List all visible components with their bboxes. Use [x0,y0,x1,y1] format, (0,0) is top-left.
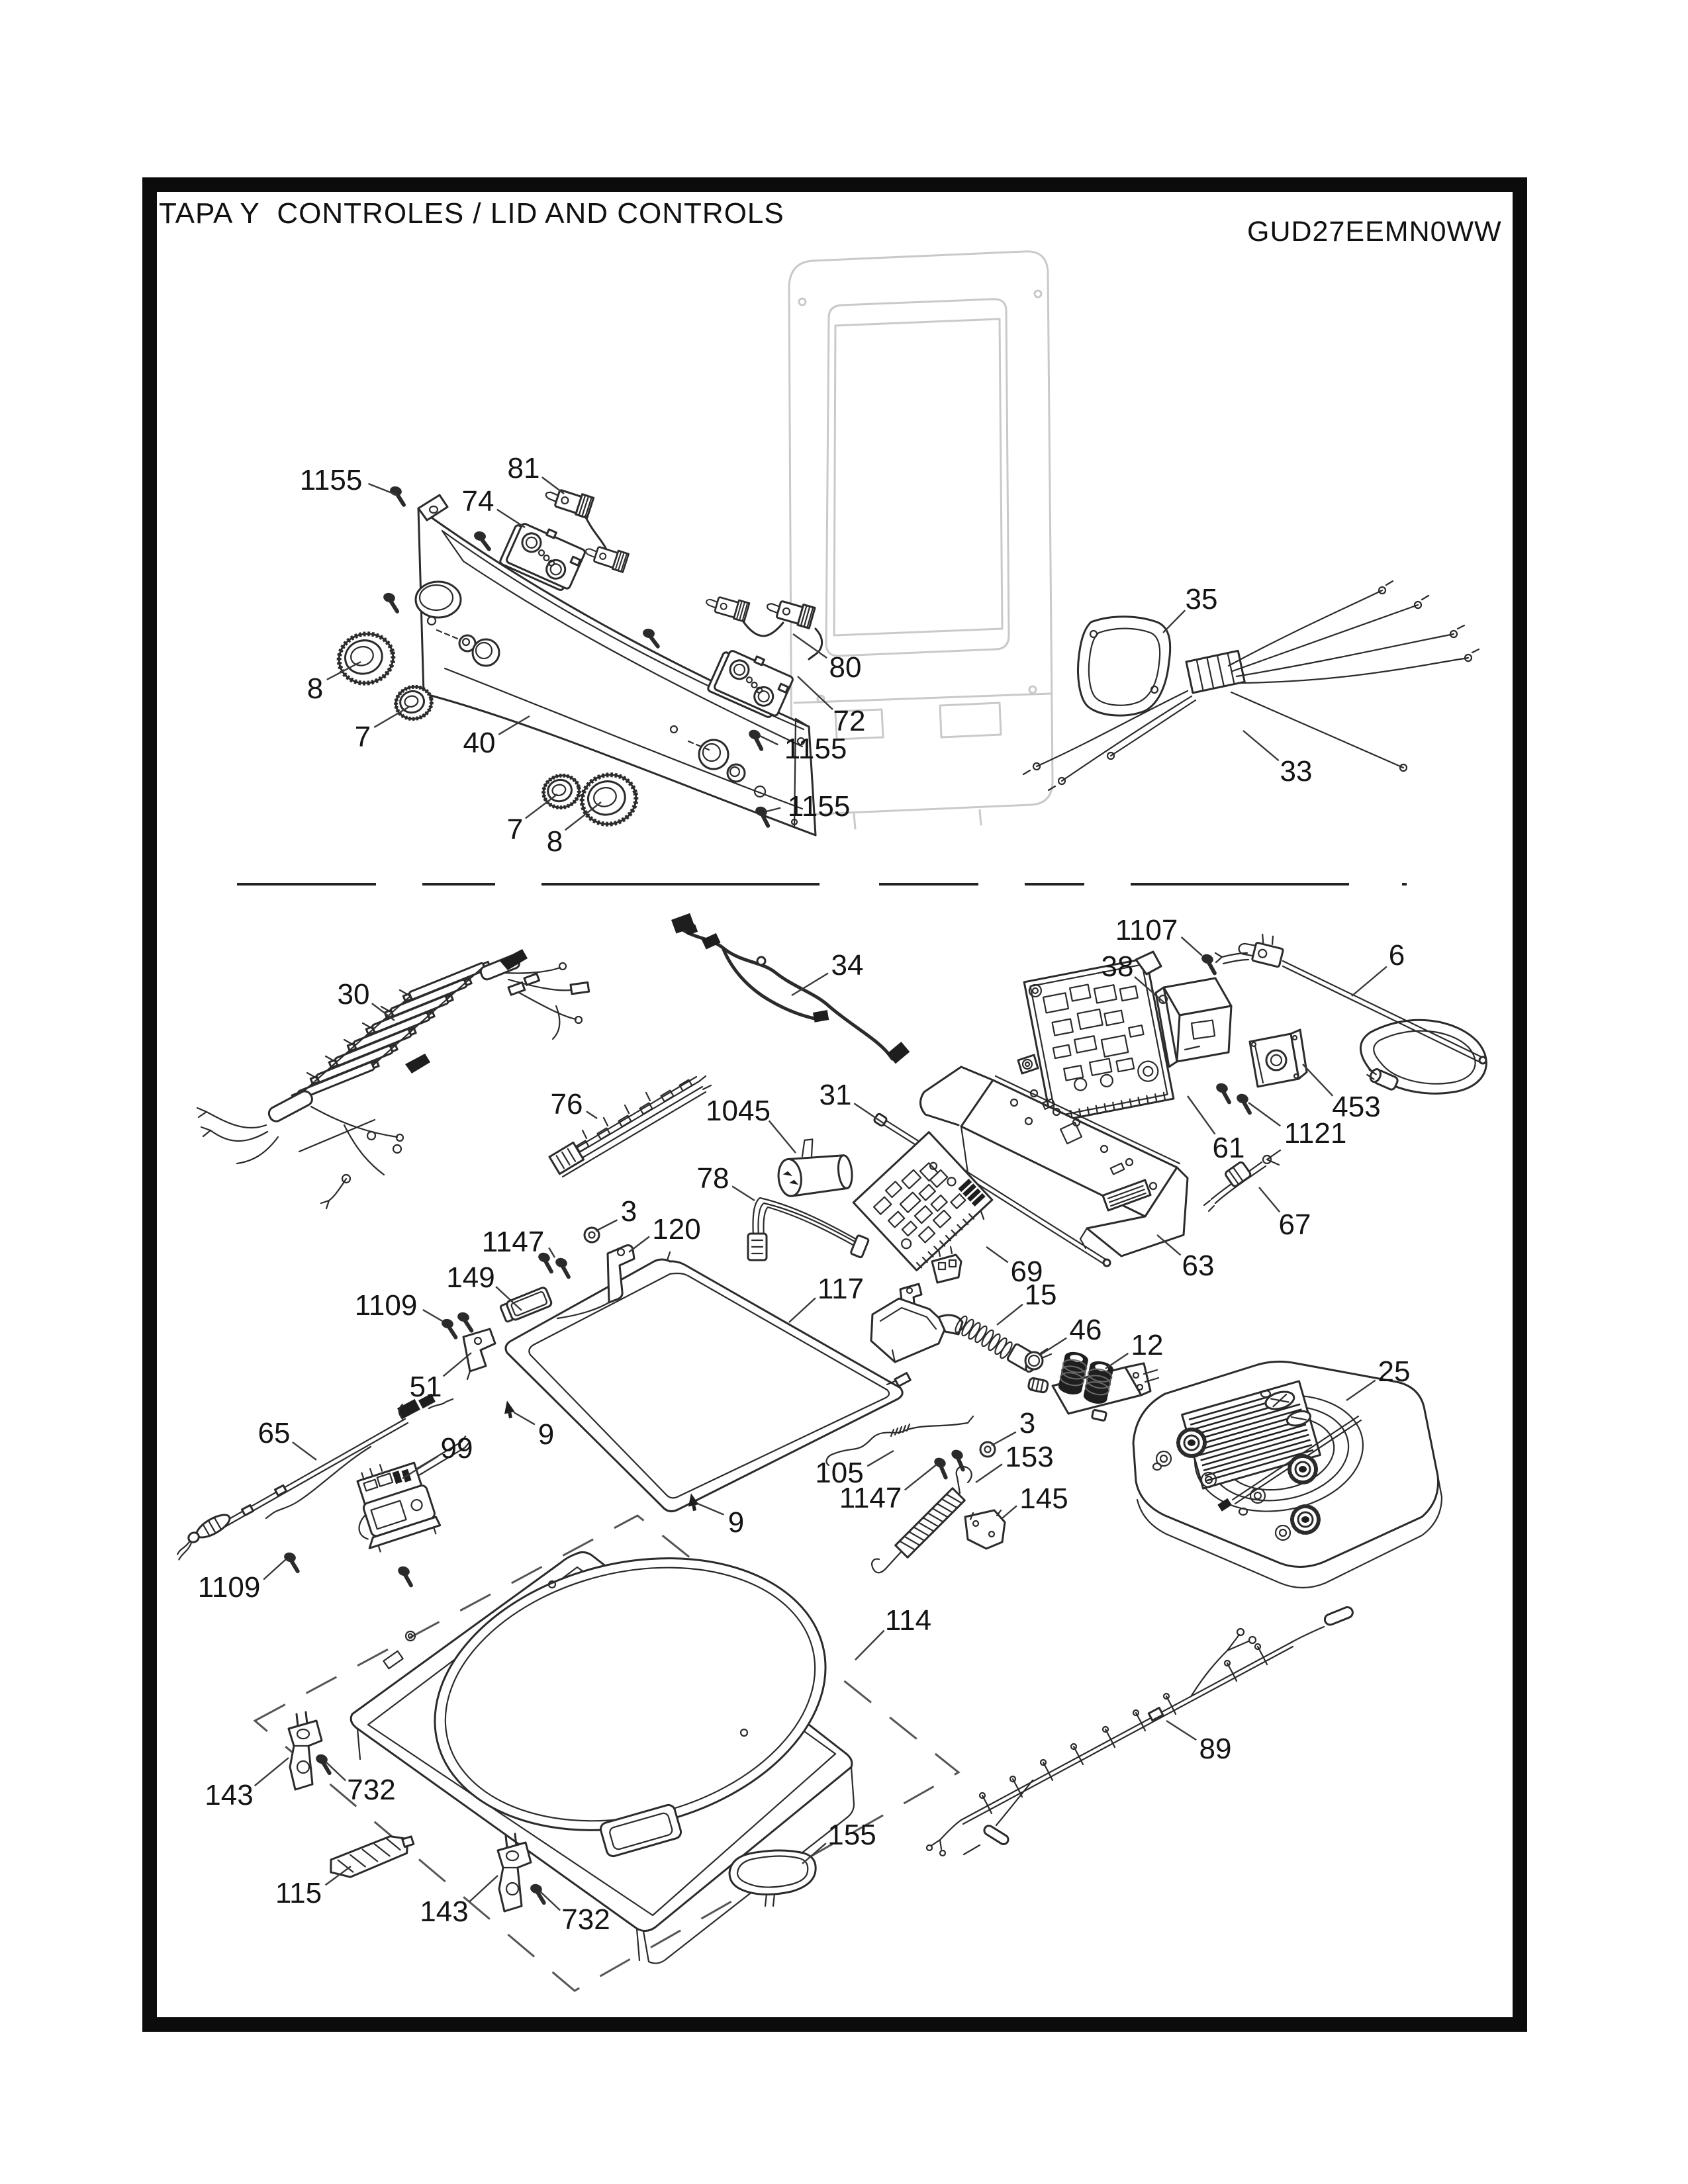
callout-leader [1182,937,1202,956]
part-number-label: 8 [307,672,323,705]
screw-icon [1213,1082,1234,1103]
clip-9 [502,1400,516,1420]
part-callout-33: 33 [1243,731,1312,788]
part-number-label: 74 [462,485,494,518]
part-number-label: 81 [508,452,540,484]
part-callout-120: 120 [629,1213,701,1252]
part-number-label: 120 [652,1213,700,1246]
part-number-label: 15 [1025,1279,1057,1311]
part-callout-1155: 1155 [300,464,397,496]
part-number-label: 1109 [198,1571,261,1604]
callout-leader [1166,1721,1196,1740]
callout-leader [1352,967,1387,996]
part-number-label: 732 [347,1774,395,1806]
part-number-label: 78 [697,1162,729,1195]
part-number-label: 34 [831,949,864,981]
spring-bracket-145 [965,1510,1005,1549]
part-number-label: 51 [410,1371,442,1403]
part-number-label: 3 [1019,1407,1035,1439]
part-callout-34: 34 [792,949,863,995]
callout-leader [769,1120,796,1153]
part-number-label: 99 [441,1432,473,1465]
callout-leader [1105,1353,1128,1369]
callout-leader [997,1304,1023,1325]
callout-leader [444,1353,471,1377]
part-number-label: 732 [561,1903,610,1936]
hinge-bracket-143 [289,1712,322,1790]
screw-icon [641,628,661,647]
part-number-label: 76 [551,1088,583,1120]
callout-leader [1243,731,1279,760]
part-number-label: 3 [621,1195,637,1228]
part-number-label: 38 [1102,950,1134,983]
part-callout-453: 453 [1303,1064,1381,1123]
part-callout-31: 31 [820,1079,884,1124]
part-callout-1109: 1109 [355,1289,442,1322]
fill-funnel-15 [871,1284,1041,1374]
parts-catalog-page: TAPA Y CONTROLES / LID AND CONTROLS GUD2… [0,0,1688,2184]
relay-cover-38 [1156,978,1231,1067]
callout-leader [1163,610,1185,633]
part-callout-732: 732 [326,1762,396,1806]
callout-leader [855,1631,884,1660]
callout-leader [1188,1096,1215,1134]
timer-knob-left [334,628,398,689]
callout-leader [514,1412,535,1424]
part-number-label: 40 [463,727,496,759]
hinge-bracket-143 [498,1834,531,1911]
part-callout-46: 46 [1039,1314,1102,1355]
part-number-label: 1045 [706,1095,771,1127]
part-callout-81: 81 [508,452,564,494]
part-callout-3: 3 [596,1195,637,1231]
part-number-label: 8 [547,825,563,858]
part-number-label: 7 [355,721,371,753]
part-number-label: 67 [1279,1208,1311,1241]
part-callout-6: 6 [1352,939,1405,996]
part-callout-117: 117 [789,1273,864,1322]
part-number-label: 1155 [788,790,851,823]
part-callout-61: 61 [1188,1096,1244,1164]
callout-leader [549,1248,555,1257]
ground-harness-89 [927,1606,1354,1856]
callout-leader [867,1451,894,1466]
lid-latch-149 [500,1287,553,1324]
capacitor-1045 [775,1136,854,1197]
part-number-label: 63 [1182,1250,1215,1282]
part-number-label: 143 [420,1895,468,1928]
part-number-label: 61 [1213,1132,1245,1164]
part-number-label: 155 [827,1819,876,1851]
callout-leader [905,1464,937,1490]
part-callout-35: 35 [1163,583,1217,633]
part-callout-89: 89 [1166,1721,1231,1765]
part-callout-143: 143 [420,1876,498,1928]
part-number-label: 89 [1199,1733,1232,1765]
wire-assembly-78 [748,1198,869,1260]
part-callout-76: 76 [551,1088,597,1120]
part-callout-1109: 1109 [198,1559,286,1604]
callout-leader [698,1504,724,1515]
part-number-label: 114 [885,1604,931,1637]
callout-leader [1259,1187,1280,1212]
part-number-label: 7 [507,813,523,846]
part-callout-1107: 1107 [1115,914,1202,956]
part-callout-80: 80 [793,634,861,684]
part-callout-1045: 1045 [706,1095,796,1153]
callout-leader [497,510,525,527]
part-number-label: 143 [205,1779,253,1811]
callout-leader [1002,1506,1017,1518]
part-number-label: 1155 [300,464,363,496]
part-callout-1147: 1147 [482,1226,555,1258]
callout-leader [469,1876,498,1902]
main-wire-harness-30 [197,949,589,1208]
part-number-label: 1121 [1284,1117,1347,1150]
part-number-label: 1147 [839,1482,902,1514]
callout-leader [1039,1338,1066,1355]
part-callout-74: 74 [462,485,525,527]
part-number-label: 1155 [784,733,847,765]
screw-icon [381,592,401,612]
tub-pack-25 [1133,1361,1442,1588]
part-callout-3: 3 [992,1407,1035,1445]
part-callout-51: 51 [410,1353,471,1403]
part-number-label: 80 [829,651,862,684]
sensor-harness-34 [671,913,910,1064]
callout-leader [423,1310,442,1321]
callout-leader [976,1464,1002,1482]
callout-leader [596,1220,617,1231]
part-callout-63: 63 [1157,1235,1214,1282]
part-number-label: 31 [820,1079,852,1111]
callout-leader [1303,1064,1333,1096]
callout-leader [542,477,564,494]
screw-icon [455,1311,475,1331]
part-number-label: 9 [728,1506,744,1539]
selector-knob-bottom [540,772,583,811]
part-callout-155: 155 [802,1819,876,1864]
part-number-label: 65 [258,1417,291,1449]
part-callout-65: 65 [258,1417,316,1460]
screw-icon [528,1883,549,1903]
part-number-label: 115 [275,1877,322,1909]
callout-leader [293,1442,316,1460]
part-callout-114: 114 [855,1604,931,1660]
screw-icon [552,1257,573,1277]
screw-icon [387,485,408,505]
callout-leader [255,1758,289,1786]
callout-leader [263,1559,286,1580]
screw-icon [313,1753,334,1773]
part-number-label: 1109 [355,1289,418,1322]
callout-leader [586,1111,597,1118]
callout-leader [1248,1103,1280,1126]
part-callout-40: 40 [463,716,530,759]
part-number-label: 6 [1389,939,1405,972]
part-callout-12: 12 [1105,1329,1163,1369]
callout-leader [732,1186,755,1201]
part-number-label: 12 [1131,1329,1164,1361]
part-number-label: 30 [338,978,370,1011]
part-callout-78: 78 [697,1162,755,1201]
exploded-view-diagram: 1155817487408072115578115535333034761045… [0,0,1688,2184]
callout-leader [986,1247,1008,1263]
end-cap-155 [729,1850,816,1906]
part-callout-30: 30 [338,978,395,1021]
mounting-bracket-453 [1250,1030,1307,1087]
part-number-label: 117 [818,1273,864,1305]
part-callout-145: 145 [1002,1482,1068,1518]
part-callout-143: 143 [205,1758,289,1811]
part-number-label: 149 [446,1261,494,1294]
power-board-69 [853,1132,993,1271]
part-callout-67: 67 [1259,1187,1311,1241]
screw-icon [1233,1093,1254,1113]
part-callout-9: 9 [514,1412,554,1451]
callout-leader [789,1298,816,1322]
part-number-label: 25 [1378,1355,1411,1388]
part-number-label: 1147 [482,1226,545,1258]
callout-leader [798,676,833,709]
part-number-label: 33 [1280,755,1313,788]
part-number-label: 153 [1005,1441,1053,1473]
part-number-label: 35 [1186,583,1218,615]
part-number-label: 1107 [1115,914,1178,946]
lid-switch-lever-51 [463,1329,495,1379]
lid-seal-35 [1078,617,1170,715]
part-number-label: 145 [1019,1482,1068,1515]
callout-leader [629,1236,649,1252]
part-callout-9: 9 [698,1504,744,1539]
timer-knob-bottom [577,769,641,830]
thermostat-80 [704,592,821,659]
part-number-label: 9 [538,1418,554,1451]
part-number-label: 46 [1070,1314,1102,1346]
part-callout-15: 15 [997,1279,1056,1325]
screw-icon [947,1448,970,1470]
